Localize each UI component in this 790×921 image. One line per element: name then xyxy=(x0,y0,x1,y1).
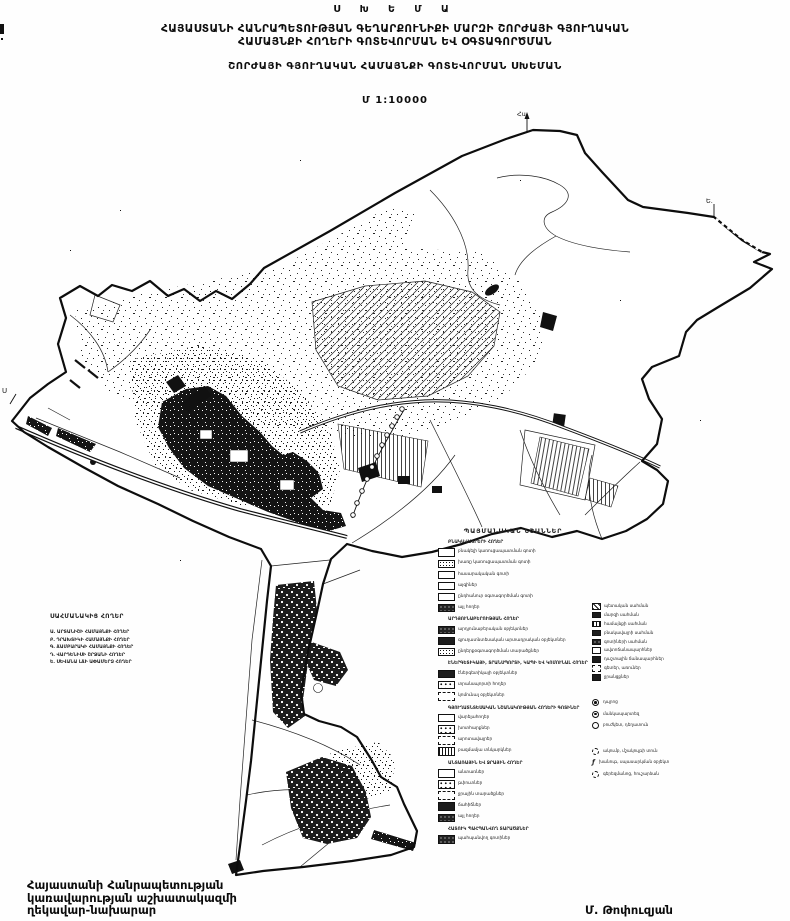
legend-item-label: բազմամյա տնկարկներ xyxy=(458,749,511,754)
legend-item-label: բուժկետ, դեղատուն xyxy=(603,722,648,727)
cemetery-symbol-icon xyxy=(592,771,599,778)
swatch-vlines xyxy=(438,747,455,756)
adjacent-land-line: Ա․ ԱՐՏԱՆԻՇԻ ՀԱՄԱՅՆՔԻ ՀՈՂԵՐ xyxy=(50,629,190,637)
scanned-map-page: Հս Ե. Ս Ս Խ Ե Մ Ա ՀԱՅԱՍՏԱՆԻ ՀԱՆՐԱՊԵՏՈՒԹՅ… xyxy=(0,0,790,921)
legend-item-label: մարզի սահման xyxy=(604,613,639,618)
legend-item: գյուղատնտեսական արտադրական օբյեկտներ xyxy=(438,637,588,646)
legend-item: ընդերքօգտագործման տարածքներ xyxy=(438,648,588,657)
legend-item-label: ակումբ, մշակույթի տուն xyxy=(603,748,658,753)
legend-item-label: խառը կառուցապատման գոտի xyxy=(458,561,530,566)
legend-item: այգիներ xyxy=(438,582,588,591)
legend-item: վարելահողեր xyxy=(438,714,588,723)
club-symbol-icon xyxy=(592,748,599,755)
legend-item-label: ընդհանուր օգտագործման գոտի xyxy=(458,595,533,600)
legend-item-label: այլ հողեր xyxy=(458,815,480,820)
swatch-hatch xyxy=(592,603,601,610)
footer-line: ղեկավար-նախարար xyxy=(27,904,237,917)
legend-item-label: մանկապարտեզ xyxy=(603,711,639,716)
legend-group-heading: ՀԱՏՈՒԿ ՊԱՀՊԱՆՎՈՂ ՏԱՐԱԾՔՆԵՐ xyxy=(448,827,588,832)
swatch-dots xyxy=(438,780,455,789)
swatch-dark-mottle xyxy=(592,639,601,646)
swatch-dark xyxy=(592,656,601,663)
legend-item: արոտավայրեր xyxy=(438,736,588,745)
legend-item-label: ջրանցքներ xyxy=(604,675,629,680)
legend-item-label: պետական սահման xyxy=(604,604,648,609)
swatch-dark-mottle xyxy=(438,835,455,844)
swatch-outline xyxy=(438,571,455,580)
swatch-outline xyxy=(438,769,455,778)
legend-symbol-item: ƒխանութ, սպասարկման օբյեկտ xyxy=(592,759,752,766)
medical-symbol-icon xyxy=(592,722,599,729)
legend-item-label: բնակավայրի սահման xyxy=(604,631,653,636)
east-point-label: Ե. xyxy=(706,197,713,205)
swatch-dark xyxy=(438,637,455,646)
page-title-line1: ՀԱՅԱՍՏԱՆԻ ՀԱՆՐԱՊԵՏՈՒԹՅԱՆ ԳԵՂԱՐՔՈՒՆԻՔԻ ՄԱ… xyxy=(0,23,790,35)
page-title-line2: ՀԱՄԱՅՆՔԻ ՀՈՂԵՐԻ ԳՈՏԵՎՈՐՄԱՆ ԵՎ ՕԳՏԱԳՈՐԾՄԱ… xyxy=(0,36,790,48)
legend-item-label: հասարակական գոտի xyxy=(458,573,509,578)
legend-item-label: այգիներ xyxy=(458,584,477,589)
adjacent-lands-title: ՍԱՀՄԱՆԱԿԻՑ ՀՈՂԵՐ xyxy=(50,613,190,620)
adjacent-land-line: Բ․ ԴՐԱԽՏԻԿԻ ՀԱՄԱՅՆՔԻ ՀՈՂԵՐ xyxy=(50,637,190,645)
swatch-dots xyxy=(438,725,455,734)
legend-item-label: ընդերքօգտագործման տարածքներ xyxy=(458,650,539,655)
legend-item-label: գերեզմանոց, հուշարձան xyxy=(603,771,659,776)
legend-group-heading: ԱՆՏԱՌԱՅԻՆ ԵՎ ՋՐԱՅԻՆ ՀՈՂԵՐ xyxy=(448,761,588,766)
swatch-outline xyxy=(438,582,455,591)
swatch-outline xyxy=(592,647,601,654)
west-point-tick xyxy=(10,394,16,404)
swatch-dashed xyxy=(438,692,455,701)
swatch-dashed xyxy=(438,791,455,800)
legend-item-label: ավտոճանապարհներ xyxy=(604,648,652,653)
legend-symbol-item: ակումբ, մշակույթի տուն xyxy=(592,748,752,755)
swatch-vlines xyxy=(592,621,601,628)
swatch-dark xyxy=(592,612,601,619)
symbols-gap xyxy=(592,734,752,748)
legend-group-heading: ԲՆԱԿԱՎԱՅՐԵՐԻ ՀՈՂԵՐ xyxy=(448,540,588,545)
legend-item: մարզի սահման xyxy=(592,612,722,619)
legend-item-label: կոմունալ օբյեկտներ xyxy=(458,694,505,699)
swatch-mottle xyxy=(438,560,455,569)
legend-item-label: էներգետիկայի օբյեկտներ xyxy=(458,672,517,677)
west-point-label: Ս xyxy=(2,387,7,395)
legend-group-heading: ԳՅՈՒՂԱՏՆՏԵՍԱԿԱՆ ՆՇԱՆԱԿՈՒԹՅԱՆ ՀՈՂԵՐԻ ԳՈՏԻ… xyxy=(448,706,588,711)
legend-symbol-item: մանկապարտեզ xyxy=(592,711,752,718)
swatch-dark xyxy=(592,630,601,637)
legend-item-label: խանութ, սպասարկման օբյեկտ xyxy=(599,759,669,764)
legend-item: բազմամյա տնկարկներ xyxy=(438,747,588,756)
legend-item-label: արդյունաբերական օբյեկտներ xyxy=(458,628,528,633)
shop-symbol-icon: ƒ xyxy=(592,759,595,766)
north-arrow-label: Հս xyxy=(517,110,526,118)
legend-item: ճահիճներ xyxy=(438,802,588,811)
footer-line: Հայաստանի Հանրապետության xyxy=(27,879,237,892)
swatch-dark-mottle xyxy=(438,626,455,635)
legend-item-label: անտառներ xyxy=(458,771,484,776)
legend-item: արդյունաբերական օբյեկտներ xyxy=(438,626,588,635)
legend-symbol-item: գերեզմանոց, հուշարձան xyxy=(592,771,752,778)
legend: ՊԱՅՄԱՆԱԿԱՆ ՆՇԱՆՆԵՐ ԲՆԱԿԱՎԱՅՐԵՐԻ ՀՈՂԵՐ բն… xyxy=(438,527,588,847)
swatch-dark xyxy=(438,670,455,679)
legend-item: ավտոճանապարհներ xyxy=(592,647,722,654)
legend-item-label: այլ հողեր xyxy=(458,606,480,611)
legend-right-column: պետական սահման մարզի սահման համայնքի սահ… xyxy=(592,603,722,683)
school-symbol-icon xyxy=(592,699,599,706)
legend-title: ՊԱՅՄԱՆԱԿԱՆ ՆՇԱՆՆԵՐ xyxy=(438,527,588,535)
legend-item: տրանսպորտի հողեր xyxy=(438,681,588,690)
legend-item: թփուտներ xyxy=(438,780,588,789)
legend-item: այլ հողեր xyxy=(438,814,588,823)
legend-item: բնակելի կառուցապատման գոտի xyxy=(438,548,588,557)
legend-item: էներգետիկայի օբյեկտներ xyxy=(438,670,588,679)
legend-item-label: ջրային տարածքներ xyxy=(458,793,504,798)
swatch-dark xyxy=(592,674,601,681)
swatch-dark xyxy=(438,802,455,811)
signature-name: Մ. Թոփուզյան xyxy=(585,903,673,917)
swatch-outline xyxy=(438,593,455,602)
swatch-dark-mottle xyxy=(438,604,455,613)
legend-item: ջրանցքներ xyxy=(592,674,722,681)
legend-group-heading: ԷՆԵՐԳԵՏԻԿԱՅԻ, ՏՐԱՆՍՊՈՐՏԻ, ԿԱՊԻ ԵՎ ԿՈՄՈՒՆ… xyxy=(448,661,588,666)
zoning-map: Հս Ե. Ս xyxy=(0,0,790,921)
legend-item-label: բնակելի կառուցապատման գոտի xyxy=(458,550,536,555)
swatch-dashed xyxy=(592,665,601,672)
swatch-outline xyxy=(438,548,455,557)
legend-item-label: պահպանվող գոտիներ xyxy=(458,837,510,842)
legend-symbol-item: դպրոց xyxy=(592,699,752,706)
legend-item: անտառներ xyxy=(438,769,588,778)
page-subtitle: ՇՈՐԺԱՅԻ ԳՅՈՒՂԱԿԱՆ ՀԱՄԱՅՆՔԻ ԳՈՏԵՎՈՐՄԱՆ ՍԽ… xyxy=(0,61,790,72)
legend-item-label: տրանսպորտի հողեր xyxy=(458,683,506,688)
legend-item: գոտիների սահման xyxy=(592,639,722,646)
legend-item-label: արոտավայրեր xyxy=(458,738,492,743)
swatch-dark-mottle xyxy=(438,814,455,823)
legend-item: կոմունալ օբյեկտներ xyxy=(438,692,588,701)
legend-item: բնակավայրի սահման xyxy=(592,630,722,637)
legend-symbol-item: բուժկետ, դեղատուն xyxy=(592,722,752,729)
footer-authority-block: Հայաստանի Հանրապետության կառավարության ա… xyxy=(27,879,237,917)
legend-item: պահպանվող գոտիներ xyxy=(438,835,588,844)
swatch-dashed xyxy=(438,736,455,745)
legend-item: պետական սահման xyxy=(592,603,722,610)
adjacent-land-line: Դ․ ՎԱՐԴԵՆԻՍԻ ՇՐՋԱՆԻ ՀՈՂԵՐ xyxy=(50,652,190,660)
legend-item-label: խոտհարքներ xyxy=(458,727,490,732)
legend-item: դաշտային ճանապարհներ xyxy=(592,656,722,663)
swatch-mottle xyxy=(438,648,455,657)
legend-item-label: համայնքի սահման xyxy=(604,622,647,627)
legend-item: հասարակական գոտի xyxy=(438,571,588,580)
legend-group-heading: ԱՐԴՅՈՒՆԱԲԵՐՈՒԹՅԱՆ ՀՈՂԵՐ xyxy=(448,617,588,622)
legend-item: խոտհարքներ xyxy=(438,725,588,734)
legend-item-label: դաշտային ճանապարհներ xyxy=(604,657,664,662)
legend-item: ընդհանուր օգտագործման գոտի xyxy=(438,593,588,602)
swatch-dots xyxy=(438,681,455,690)
legend-symbols: դպրոց մանկապարտեզ բուժկետ, դեղատուն ակու… xyxy=(592,699,752,783)
legend-item-label: վարելահողեր xyxy=(458,716,489,721)
kindergarten-symbol-icon xyxy=(592,711,599,718)
adjacent-land-line: Գ․ ՃԱՄԲԱՐԱԿԻ ՀԱՄԱՅՆՔԻ ՀՈՂԵՐ xyxy=(50,644,190,652)
map-scale: Մ 1:10000 xyxy=(0,95,790,106)
swatch-outline xyxy=(438,714,455,723)
legend-item: խառը կառուցապատման գոտի xyxy=(438,560,588,569)
legend-item-label: գոտիների սահման xyxy=(604,640,647,645)
legend-item-label: ճահիճներ xyxy=(458,804,481,809)
adjacent-lands-block: ՍԱՀՄԱՆԱԿԻՑ ՀՈՂԵՐ Ա․ ԱՐՏԱՆԻՇԻ ՀԱՄԱՅՆՔԻ ՀՈ… xyxy=(50,613,190,667)
legend-item-label: դպրոց xyxy=(603,699,618,704)
legend-item-label: գետեր, առուներ xyxy=(604,666,641,671)
legend-item: համայնքի սահման xyxy=(592,621,722,628)
schema-label: Ս Խ Ե Մ Ա xyxy=(0,4,790,15)
legend-item: այլ հողեր xyxy=(438,604,588,613)
legend-item-label: գյուղատնտեսական արտադրական օբյեկտներ xyxy=(458,639,566,644)
legend-item-label: թփուտներ xyxy=(458,782,482,787)
adjacent-land-line: Ե․ ՍԵՎԱՆԱ ԼՃԻ ԱՓԱՄԵՐՁ ՀՈՂԵՐ xyxy=(50,659,190,667)
legend-item: գետեր, առուներ xyxy=(592,665,722,672)
legend-item: ջրային տարածքներ xyxy=(438,791,588,800)
